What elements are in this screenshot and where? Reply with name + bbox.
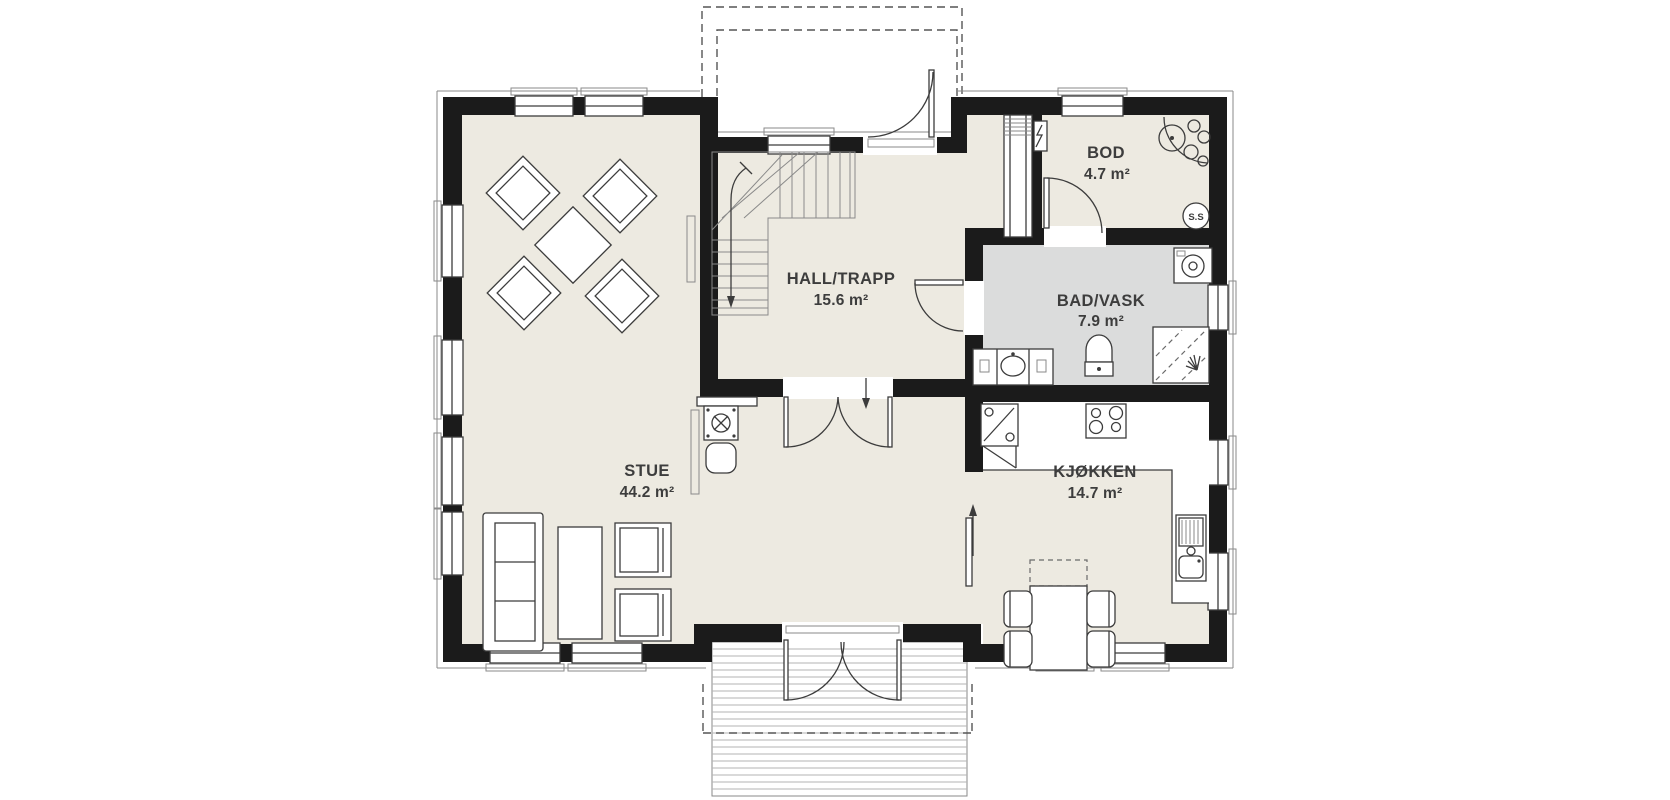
vent-shaft [1004,115,1032,237]
floor-plan-page: S.S [0,0,1670,800]
dining-chair [1004,591,1032,627]
dining-chair [1004,631,1032,667]
chair [615,523,671,577]
room-label-hall: HALL/TRAPP [787,270,896,288]
electrical-panel [1034,121,1047,151]
shower [1153,327,1209,383]
room-label-kjokken: KJØKKEN [1053,463,1136,481]
room-area-bod: 4.7 m² [1084,166,1130,183]
sofa [483,513,543,651]
room-area-stue: 44.2 m² [620,484,675,501]
room-label-stue: STUE [624,462,670,480]
washing-machine [1174,248,1212,283]
toilet [1085,335,1113,376]
dining-chair [1087,631,1115,667]
room-label-badvask: BAD/VASK [1057,292,1145,310]
central-vacuum-marker: S.S [1183,203,1209,229]
cooktop [1086,404,1126,438]
chair [615,589,671,641]
room-area-badvask: 7.9 m² [1078,313,1124,330]
floor-plan-drawing: S.S [0,0,1670,800]
dining-chair [1087,591,1115,627]
central-vacuum-label: S.S [1188,212,1203,223]
room-area-kjokken: 14.7 m² [1068,485,1123,502]
wood-stove [706,443,736,473]
coffee-table [558,527,602,639]
kitchen-sink [1176,515,1206,581]
room-area-hall: 15.6 m² [814,292,869,309]
vanity-sink [973,349,1053,385]
room-label-bod: BOD [1087,144,1125,162]
